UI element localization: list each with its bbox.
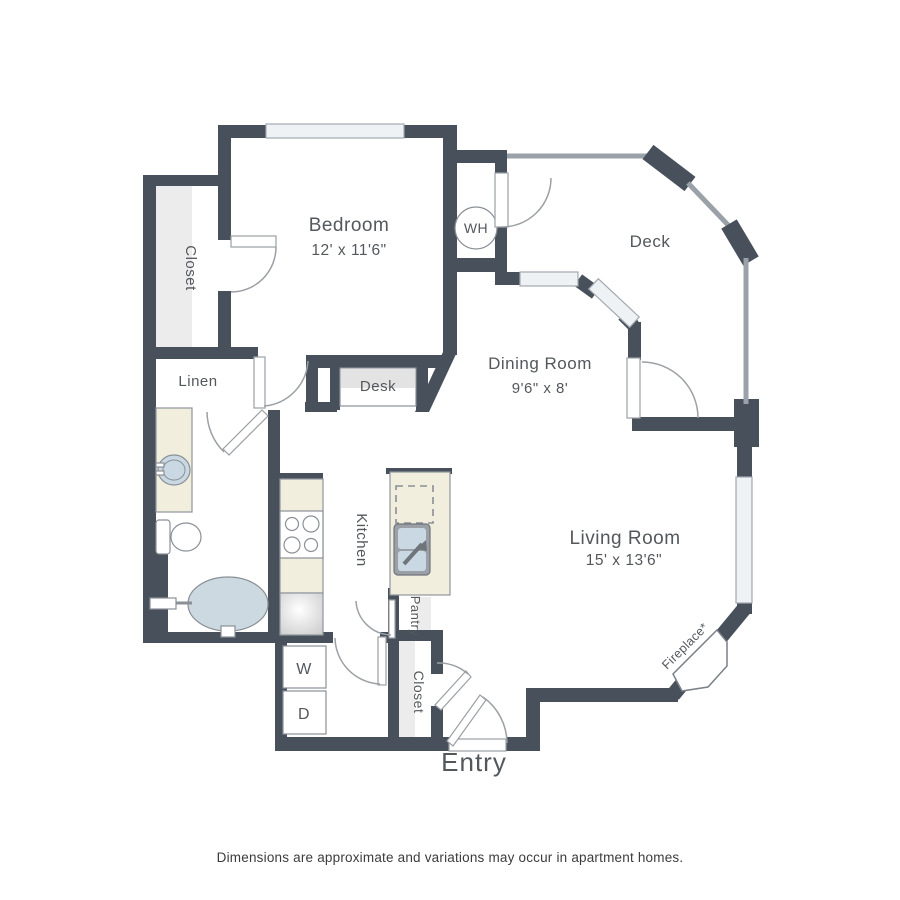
bathroom-door-leaf bbox=[223, 410, 268, 455]
kitchen-label: Kitchen bbox=[353, 513, 370, 567]
dryer-label: D bbox=[298, 706, 310, 723]
closet-door-leaf bbox=[231, 236, 276, 247]
dining-label: Dining Room bbox=[488, 354, 592, 373]
bedroom-door-leaf bbox=[254, 357, 265, 408]
toilet-bowl bbox=[171, 523, 201, 551]
dining-window bbox=[520, 272, 578, 286]
entry-closet-door-leaf bbox=[435, 671, 471, 710]
laundry-door-leaf bbox=[378, 637, 386, 685]
bathtub bbox=[188, 577, 268, 631]
dining-corner-window bbox=[589, 279, 640, 327]
bedroom-closet-label: Closet bbox=[182, 245, 199, 291]
burner bbox=[284, 537, 300, 553]
bedroom-label: Bedroom bbox=[309, 215, 390, 236]
living-dims: 15' x 13'6" bbox=[586, 552, 662, 569]
pantry-door-leaf bbox=[389, 600, 395, 638]
faucet-icon bbox=[156, 471, 164, 475]
entry-door-leaf bbox=[447, 695, 486, 746]
floorplan-svg: Bedroom 12' x 11'6" Closet Linen Desk WH… bbox=[0, 0, 900, 900]
floorplan-page: Bedroom 12' x 11'6" Closet Linen Desk WH… bbox=[0, 0, 900, 900]
dining-dims: 9'6" x 8' bbox=[512, 380, 568, 397]
deck-label: Deck bbox=[630, 232, 671, 251]
tub-faucet bbox=[150, 598, 176, 609]
toilet-tank bbox=[156, 520, 170, 554]
burner bbox=[305, 539, 318, 552]
burner bbox=[303, 516, 319, 532]
living-label: Living Room bbox=[569, 528, 680, 549]
dining-door-leaf bbox=[627, 358, 640, 418]
entry-label: Entry bbox=[441, 747, 507, 777]
tub-drain bbox=[221, 626, 235, 637]
disclaimer-text: Dimensions are approximate and variation… bbox=[217, 850, 684, 865]
washer-label: W bbox=[296, 661, 312, 678]
living-window bbox=[736, 477, 752, 603]
linen-label: Linen bbox=[178, 373, 217, 390]
faucet-icon bbox=[156, 463, 164, 467]
pantry-label: Pantry bbox=[408, 596, 423, 637]
desk-label: Desk bbox=[360, 378, 396, 395]
burner bbox=[286, 518, 299, 531]
bedroom-dims: 12' x 11'6" bbox=[311, 242, 386, 259]
entry-closet-label: Closet bbox=[411, 671, 427, 714]
refrigerator bbox=[280, 593, 323, 635]
bedroom-window bbox=[266, 124, 404, 138]
wh-door-leaf bbox=[495, 173, 508, 227]
water-heater-label: WH bbox=[464, 220, 488, 236]
